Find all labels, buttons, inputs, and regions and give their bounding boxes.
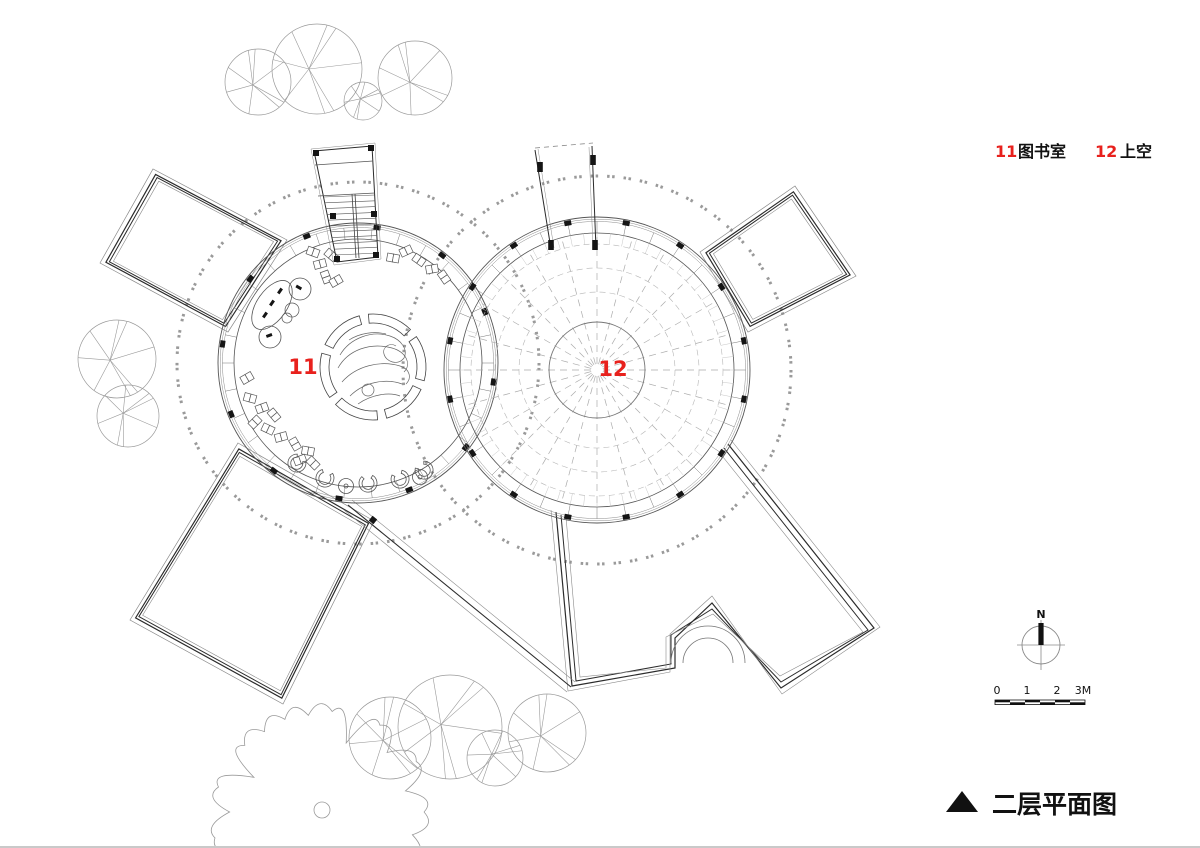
north-indicator: N — [1017, 608, 1065, 670]
scale-tick-0: 0 — [994, 684, 1001, 697]
legend-library-label: 图书室 — [1018, 142, 1066, 161]
tree-symbol — [467, 730, 523, 786]
void-room-label: 12 — [598, 357, 627, 381]
tree-symbol — [378, 41, 452, 115]
library-room-label: 11 — [288, 355, 317, 379]
legend: 11 图书室 12 上空 — [995, 142, 1152, 161]
trees — [78, 24, 586, 848]
north-needle — [1038, 623, 1043, 645]
legend-void-number: 12 — [1095, 142, 1117, 161]
library-core — [320, 314, 426, 420]
tree-symbol — [97, 385, 159, 447]
scale-tick-2: 2 — [1054, 684, 1061, 697]
tree-symbol — [225, 49, 291, 115]
library-furniture — [240, 245, 451, 494]
staircase — [311, 143, 381, 265]
scale-bar: 0 1 2 3M — [994, 684, 1092, 705]
tree-symbol — [344, 82, 382, 120]
scale-tick-3m: 3M — [1075, 684, 1092, 697]
title-triangle-icon — [946, 791, 978, 812]
legend-void-label: 上空 — [1120, 142, 1152, 161]
top-corridor — [535, 143, 598, 250]
void-interior — [460, 233, 734, 507]
floor-plan-page: 11 12 11 图书室 12 上空 N 0 1 2 3M 二层平面图 — [0, 0, 1200, 848]
tree-symbol — [78, 320, 156, 398]
scale-tick-1: 1 — [1024, 684, 1031, 697]
title-block: 二层平面图 — [946, 790, 1117, 819]
plan-linework — [78, 24, 880, 848]
legend-library-number: 11 — [995, 142, 1017, 161]
tree-symbol — [508, 694, 586, 772]
north-indicator-label: N — [1036, 608, 1045, 621]
tree-symbol — [349, 697, 431, 779]
floor-plan-drawing: 11 12 11 图书室 12 上空 N 0 1 2 3M 二层平面图 — [0, 0, 1200, 848]
plan-title: 二层平面图 — [992, 790, 1117, 819]
